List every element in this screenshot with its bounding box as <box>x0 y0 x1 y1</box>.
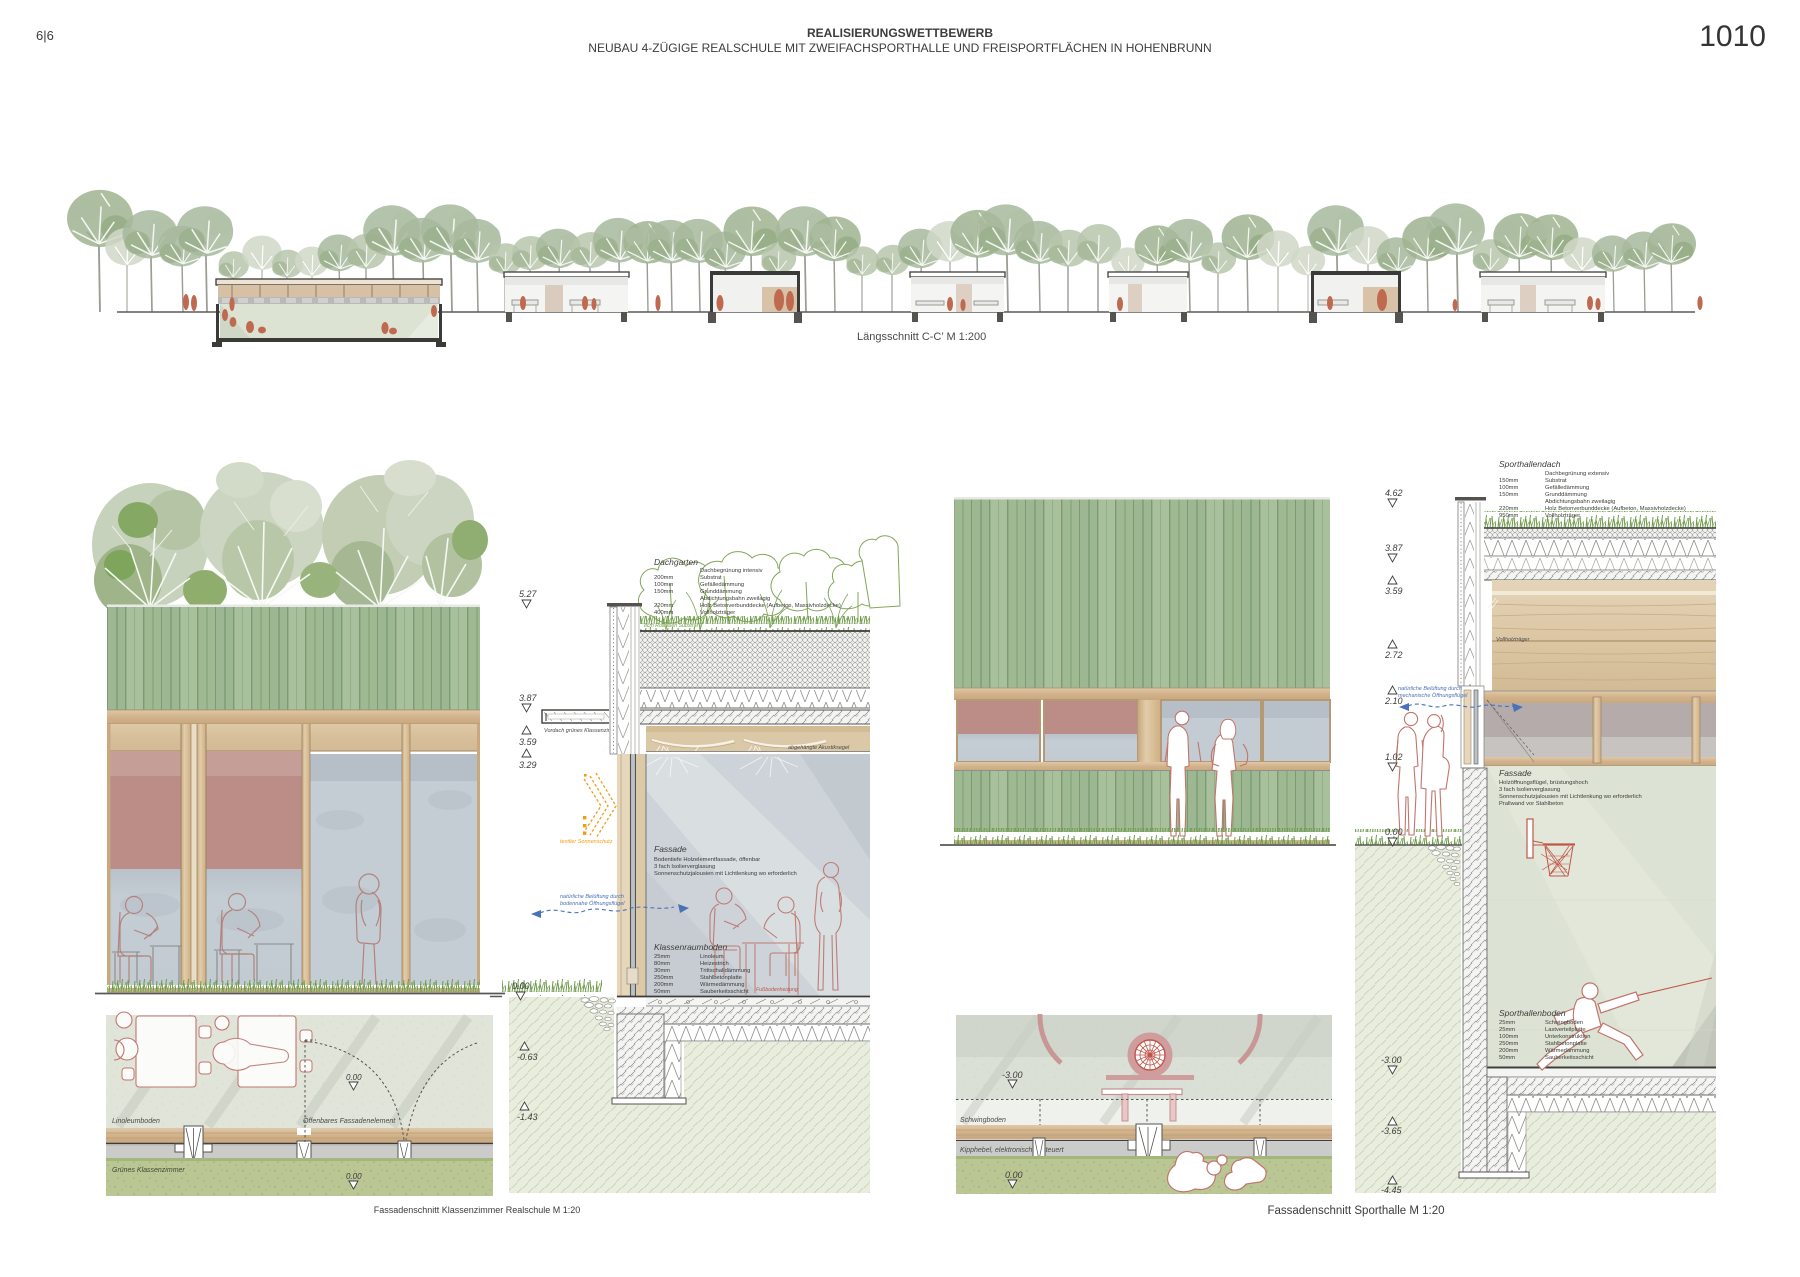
svg-text:0.00: 0.00 <box>1005 1170 1023 1180</box>
svg-text:Fassadenschnitt Sporthalle M 1: Fassadenschnitt Sporthalle M 1:20 <box>1267 1205 1444 1217</box>
svg-text:Schwingboden: Schwingboden <box>960 1117 1006 1124</box>
svg-text:Linoleum: Linoleum <box>700 954 724 960</box>
svg-text:abgehängte Akustiksegel: abgehängte Akustiksegel <box>788 745 850 751</box>
svg-text:200mm: 200mm <box>654 575 674 581</box>
svg-text:2.72: 2.72 <box>1384 650 1403 660</box>
svg-text:Sporthallendach: Sporthallendach <box>1499 459 1561 469</box>
svg-text:0.00: 0.00 <box>512 981 530 991</box>
svg-text:Unterkonstruktion: Unterkonstruktion <box>1545 1034 1590 1040</box>
svg-text:3.87: 3.87 <box>1385 543 1404 553</box>
svg-text:3.59: 3.59 <box>1385 586 1403 596</box>
svg-text:Abdichtungsbahn zweilagig: Abdichtungsbahn zweilagig <box>1545 499 1615 505</box>
svg-text:Vollholzträger: Vollholzträger <box>1545 513 1580 519</box>
svg-text:50mm: 50mm <box>1499 1055 1515 1061</box>
svg-text:200mm: 200mm <box>654 982 674 988</box>
svg-text:3.87: 3.87 <box>519 693 538 703</box>
svg-text:Gefälledämmung: Gefälledämmung <box>700 582 744 588</box>
svg-text:220mm: 220mm <box>654 603 674 609</box>
svg-text:Sonnenschutzjalousien mit Lich: Sonnenschutzjalousien mit Lichtlenkung w… <box>654 871 797 877</box>
svg-text:Trittschalldämmung: Trittschalldämmung <box>700 968 750 974</box>
svg-text:Substrat: Substrat <box>1545 478 1567 484</box>
svg-text:3.59: 3.59 <box>519 737 537 747</box>
svg-text:200mm: 200mm <box>1499 1048 1519 1054</box>
svg-text:5.27: 5.27 <box>519 589 538 599</box>
svg-text:Schwingboden: Schwingboden <box>1545 1020 1583 1026</box>
svg-text:2.10: 2.10 <box>1384 696 1403 706</box>
svg-text:Stahlbetonplatte: Stahlbetonplatte <box>1545 1041 1587 1047</box>
svg-text:100mm: 100mm <box>654 582 674 588</box>
svg-text:Sauberkeitsschicht: Sauberkeitsschicht <box>1545 1055 1594 1061</box>
svg-text:0.00: 0.00 <box>346 1073 362 1082</box>
svg-text:Dachbegrünung intensiv: Dachbegrünung intensiv <box>700 568 763 574</box>
svg-text:30mm: 30mm <box>654 968 670 974</box>
svg-text:4.62: 4.62 <box>1385 488 1403 498</box>
svg-text:Prallwand vor Stahlbeton: Prallwand vor Stahlbeton <box>1499 801 1563 807</box>
svg-text:250mm: 250mm <box>654 975 674 981</box>
svg-text:Fassade: Fassade <box>654 844 687 854</box>
svg-text:Holz Betonverbunddecke (Aufbet: Holz Betonverbunddecke (Aufbeton, Massiv… <box>700 603 841 609</box>
svg-text:Sporthallenboden: Sporthallenboden <box>1499 1008 1566 1018</box>
svg-text:Lastverteilplatte: Lastverteilplatte <box>1545 1027 1586 1033</box>
svg-text:50mm: 50mm <box>654 989 670 995</box>
svg-text:Heizestrich: Heizestrich <box>700 961 729 967</box>
svg-text:Abdichtungsbahn zweilagig: Abdichtungsbahn zweilagig <box>700 596 770 602</box>
svg-text:Fassade: Fassade <box>1499 768 1532 778</box>
svg-text:Holz Betonverbunddecke (Aufbet: Holz Betonverbunddecke (Aufbeton, Massiv… <box>1545 506 1686 512</box>
svg-text:Holzöffnungsflügel, brüstungsh: Holzöffnungsflügel, brüstungshoch <box>1499 780 1588 786</box>
svg-text:Vollholzträger: Vollholzträger <box>700 610 735 616</box>
svg-text:0.00: 0.00 <box>1385 827 1403 837</box>
svg-text:-0.63: -0.63 <box>517 1052 538 1062</box>
svg-text:3.29: 3.29 <box>519 760 537 770</box>
svg-text:25mm: 25mm <box>1499 1027 1515 1033</box>
svg-text:0.00: 0.00 <box>346 1172 362 1181</box>
svg-text:textiler Sonnenschutz: textiler Sonnenschutz <box>560 839 613 845</box>
svg-text:Stahlbetonplatte: Stahlbetonplatte <box>700 975 742 981</box>
svg-text:8cm Rollrasen Substrat: 8cm Rollrasen Substrat <box>644 623 698 629</box>
svg-text:150mm: 150mm <box>654 589 674 595</box>
svg-text:Bodentiefe Holzelementfassade,: Bodentiefe Holzelementfassade, öffenbar <box>654 857 760 863</box>
svg-text:-4.45: -4.45 <box>1381 1185 1403 1195</box>
svg-text:Sauberkeitsschicht: Sauberkeitsschicht <box>700 989 749 995</box>
svg-text:25mm: 25mm <box>654 954 670 960</box>
svg-text:Gefälledämmung: Gefälledämmung <box>1545 485 1589 491</box>
svg-text:250mm: 250mm <box>1499 1041 1519 1047</box>
svg-text:Fußbodenheizung: Fußbodenheizung <box>756 987 798 993</box>
svg-text:Kipphebel, elektronisch gesteu: Kipphebel, elektronisch gesteuert <box>960 1147 1065 1154</box>
svg-text:Substrat: Substrat <box>700 575 722 581</box>
svg-text:Klassenraumboden: Klassenraumboden <box>654 942 728 952</box>
svg-text:1.02: 1.02 <box>1385 752 1403 762</box>
svg-text:Dachgarten: Dachgarten <box>654 557 698 567</box>
svg-text:REALISIERUNGSWETTBEWERB: REALISIERUNGSWETTBEWERB <box>807 26 993 40</box>
svg-text:natürliche Belüftung durch: natürliche Belüftung durch <box>1398 686 1462 692</box>
svg-text:Vollholzträger: Vollholzträger <box>1496 637 1531 643</box>
svg-text:-3.00: -3.00 <box>1381 1055 1402 1065</box>
svg-text:NEUBAU 4-ZÜGIGE REALSCHULE MIT: NEUBAU 4-ZÜGIGE REALSCHULE MIT ZWEIFACHS… <box>588 41 1211 55</box>
svg-text:3 fach Isolierverglasung: 3 fach Isolierverglasung <box>1499 787 1560 793</box>
svg-text:Öffenbares Fassadenelement: Öffenbares Fassadenelement <box>303 1117 396 1125</box>
svg-text:3 fach Isolierverglasung: 3 fach Isolierverglasung <box>654 864 715 870</box>
svg-text:150mm: 150mm <box>1499 492 1519 498</box>
svg-text:mechanische Öffnungsflügel: mechanische Öffnungsflügel <box>1398 692 1468 699</box>
svg-text:-1.43: -1.43 <box>517 1112 538 1122</box>
svg-text:100mm: 100mm <box>1499 485 1519 491</box>
svg-text:1010: 1010 <box>1699 20 1766 53</box>
svg-text:400mm: 400mm <box>654 610 674 616</box>
svg-text:Längsschnitt C-C’ M 1:200: Längsschnitt C-C’ M 1:200 <box>857 331 986 343</box>
svg-text:Dachbegrünung extensiv: Dachbegrünung extensiv <box>1545 471 1609 477</box>
svg-text:-3.00: -3.00 <box>1002 1070 1023 1080</box>
svg-text:25mm: 25mm <box>1499 1020 1515 1026</box>
svg-text:Grünes Klassenzimmer: Grünes Klassenzimmer <box>112 1167 185 1174</box>
svg-text:natürliche Belüftung durch: natürliche Belüftung durch <box>560 894 624 900</box>
svg-text:6|6: 6|6 <box>36 28 54 43</box>
svg-text:220mm: 220mm <box>1499 506 1519 512</box>
svg-text:150mm: 150mm <box>1499 478 1519 484</box>
svg-text:Grunddämmung: Grunddämmung <box>1545 492 1587 498</box>
svg-text:-3.65: -3.65 <box>1381 1126 1403 1136</box>
svg-text:950mm: 950mm <box>1499 513 1519 519</box>
svg-text:100mm: 100mm <box>1499 1034 1519 1040</box>
svg-text:80mm: 80mm <box>654 961 670 967</box>
svg-text:Wärmedämmung: Wärmedämmung <box>700 982 744 988</box>
svg-text:Grunddämmung: Grunddämmung <box>700 589 742 595</box>
svg-text:Wärmedämmung: Wärmedämmung <box>1545 1048 1589 1054</box>
svg-text:Linoleumboden: Linoleumboden <box>112 1118 160 1125</box>
svg-text:Fassadenschnitt Klassenzimmer: Fassadenschnitt Klassenzimmer Realschule… <box>374 1205 581 1215</box>
svg-text:bodennahe Öffnungsflügel: bodennahe Öffnungsflügel <box>560 900 625 907</box>
svg-text:Sonnenschutzjalousien mit Lich: Sonnenschutzjalousien mit Lichtlenkung w… <box>1499 794 1642 800</box>
